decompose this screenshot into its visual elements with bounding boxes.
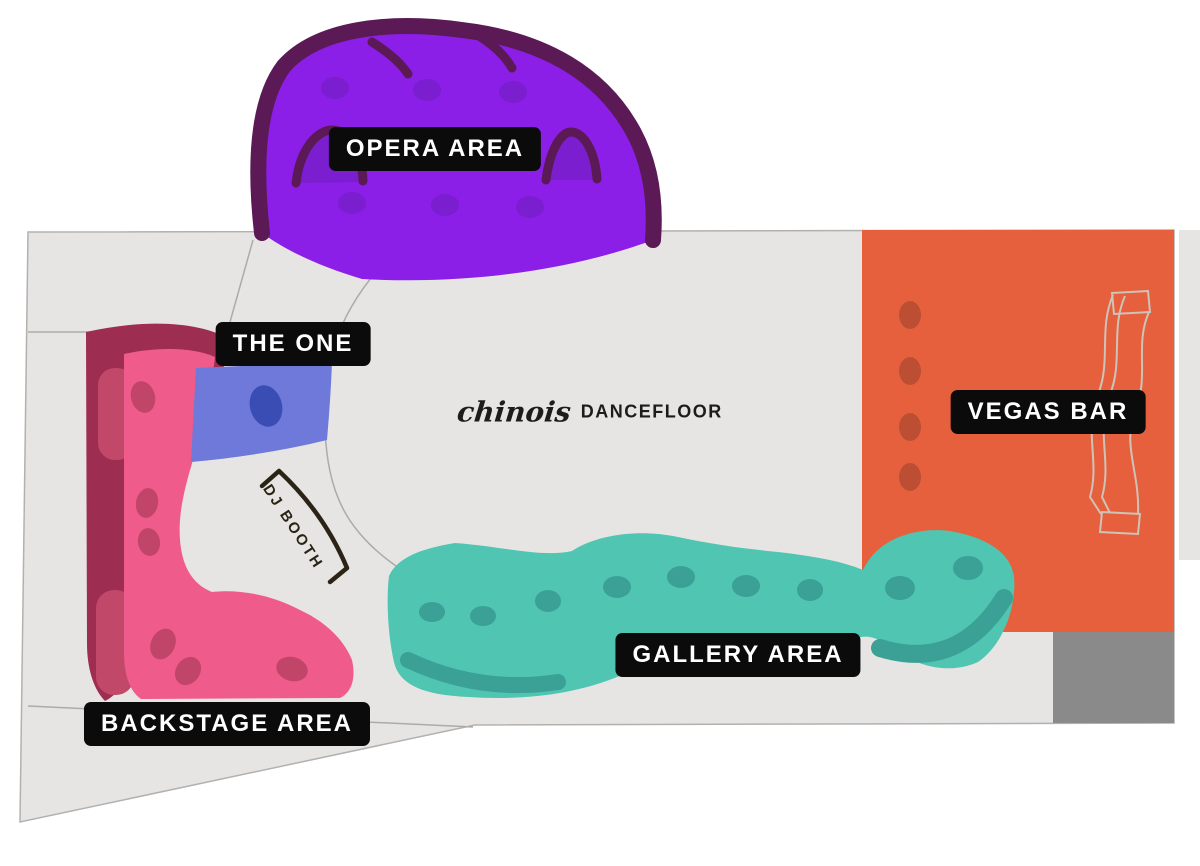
dot (470, 606, 496, 626)
dot (535, 590, 561, 612)
dancefloor-title: chinois DANCEFLOOR (457, 396, 722, 429)
dot (953, 556, 983, 580)
dot (667, 566, 695, 588)
dancefloor-brand: chinois (456, 396, 573, 429)
dot (732, 575, 760, 597)
area-label-opera[interactable]: OPERA AREA (329, 127, 541, 171)
dot (419, 602, 445, 622)
dot (603, 576, 631, 598)
dot (899, 357, 921, 385)
dot (899, 413, 921, 441)
dot (899, 463, 921, 491)
dot (885, 576, 915, 600)
area-label-gallery[interactable]: GALLERY AREA (615, 633, 860, 677)
dot (516, 196, 544, 218)
dot (321, 77, 349, 99)
area-label-the-one[interactable]: THE ONE (216, 322, 371, 366)
dot (413, 79, 441, 101)
dot (431, 194, 459, 216)
dot (899, 301, 921, 329)
dot (797, 579, 823, 601)
floor-right-strip (1179, 230, 1200, 560)
lower-right-block (1053, 632, 1174, 723)
area-label-vegas-bar[interactable]: VEGAS BAR (951, 390, 1146, 434)
dancefloor-label: DANCEFLOOR (581, 402, 723, 423)
dot (338, 192, 366, 214)
venue-floor-map: DJ BOOTH chinois DANCEFLOOR OPERA AREA T… (0, 0, 1200, 866)
dot (499, 81, 527, 103)
area-label-backstage[interactable]: BACKSTAGE AREA (84, 702, 370, 746)
